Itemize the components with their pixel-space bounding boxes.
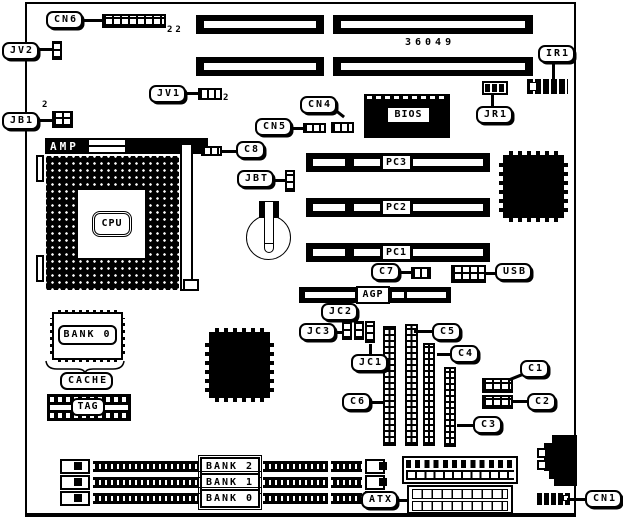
label-jc2: JC2 xyxy=(321,303,358,321)
socket-tab-lower xyxy=(36,255,44,282)
bios-socket-dashes xyxy=(367,96,447,99)
cn6-header xyxy=(102,14,166,28)
cn4-connector xyxy=(331,122,354,133)
label-tag: TAG xyxy=(71,398,105,416)
cn5-pointer xyxy=(290,127,304,130)
label-jv2: JV2 xyxy=(2,42,39,60)
label-pc1: PC1 xyxy=(381,244,412,261)
label-cpu: CPU xyxy=(94,213,130,235)
label-cn6: CN6 xyxy=(46,11,83,29)
isa-slot-1-left xyxy=(196,15,324,34)
socket-lever-foot xyxy=(183,279,199,291)
board-edge-left xyxy=(25,2,27,517)
cn6-pointer xyxy=(84,19,102,22)
socket-tab-upper xyxy=(36,155,44,182)
board-number: 36049 xyxy=(405,38,455,48)
jc2-jumper xyxy=(354,321,364,340)
cn1-connector xyxy=(537,493,571,505)
label-jc1: JC1 xyxy=(351,354,388,372)
jv1-jumper xyxy=(198,88,222,100)
jv2-pointer xyxy=(37,48,53,51)
chipset-qfp-middle xyxy=(209,332,270,398)
battery-pin xyxy=(264,201,274,253)
c6-strip xyxy=(383,326,396,446)
c6-pointer xyxy=(370,401,384,404)
keyboard-connector-body xyxy=(544,443,577,471)
cn6-pin-count: 22 xyxy=(167,26,184,35)
keyboard-notch-lower xyxy=(537,460,547,470)
c5-strip xyxy=(405,324,418,446)
amp-slot xyxy=(89,147,125,152)
atx-power-connector xyxy=(407,485,513,514)
isa-slot-2-left xyxy=(196,57,324,76)
c3-strip xyxy=(444,367,456,447)
label-agp: AGP xyxy=(356,286,390,304)
keyboard-connector-foot xyxy=(554,478,577,486)
chipset-qfp-top xyxy=(503,155,564,218)
c4-strip xyxy=(423,343,435,446)
label-bios: BIOS xyxy=(386,106,431,124)
socket-lever xyxy=(180,143,193,291)
label-usb: USB xyxy=(495,263,532,281)
amp-slot xyxy=(89,140,125,145)
board-edge-top xyxy=(25,2,576,4)
label-cn4: CN4 xyxy=(300,96,337,114)
label-c8: C8 xyxy=(236,141,265,159)
c7-connector xyxy=(411,267,431,279)
motherboard-diagram: 36049 22 CN6 JV2 2 JB1 2 JV1 CN4 CN5 C8 … xyxy=(0,0,623,519)
label-c7: C7 xyxy=(371,263,400,281)
simm-slot-bank0: BANK 0 xyxy=(60,491,385,507)
label-c4: C4 xyxy=(450,345,479,363)
jv1-pointer xyxy=(184,92,199,95)
jbt-jumper xyxy=(285,170,295,192)
label-jv1: JV1 xyxy=(149,85,186,103)
at-power-connector xyxy=(402,456,518,484)
label-jr1: JR1 xyxy=(476,106,513,124)
c3-pointer xyxy=(457,424,474,427)
cn1-pointer xyxy=(567,498,587,501)
c1-header xyxy=(482,378,513,393)
ir1-pointer xyxy=(552,61,555,80)
label-c5: C5 xyxy=(432,323,461,341)
keyboard-notch-upper xyxy=(537,448,547,458)
usb-header xyxy=(451,265,486,283)
label-c6: C6 xyxy=(342,393,371,411)
label-cn1: CN1 xyxy=(585,490,622,508)
label-amp: AMP xyxy=(50,141,79,152)
jv1-pin1-mark: 2 xyxy=(223,94,228,103)
c8-pointer xyxy=(221,150,237,153)
label-pc2: PC2 xyxy=(381,199,412,216)
jv2-jumper xyxy=(52,41,62,60)
jr1-connector xyxy=(482,81,508,95)
c2-header xyxy=(482,395,513,409)
ir1-connector xyxy=(527,79,568,94)
cn5-connector xyxy=(303,123,326,133)
jb1-pin1-mark: 2 xyxy=(42,101,47,110)
label-jc3: JC3 xyxy=(299,323,336,341)
label-jbt: JBT xyxy=(237,170,274,188)
jb1-jumper xyxy=(52,111,73,128)
jc1-jumper xyxy=(365,321,375,343)
label-cache: CACHE xyxy=(60,372,113,390)
label-bank0-chip: BANK 0 xyxy=(58,325,117,345)
label-cn5: CN5 xyxy=(255,118,292,136)
label-bank0: BANK 0 xyxy=(200,489,260,508)
label-c2: C2 xyxy=(527,393,556,411)
label-c3: C3 xyxy=(473,416,502,434)
label-c1: C1 xyxy=(520,360,549,378)
label-ir1: IR1 xyxy=(538,45,575,63)
jbt-pointer xyxy=(273,179,286,182)
c7-pointer xyxy=(399,271,412,274)
c5-pointer xyxy=(414,330,433,333)
isa-slot-1-right xyxy=(333,15,533,34)
c8-connector xyxy=(201,146,222,156)
jc3-jumper xyxy=(342,322,352,340)
label-atx: ATX xyxy=(361,491,398,509)
label-pc3: PC3 xyxy=(381,154,412,171)
isa-slot-2-right xyxy=(333,57,533,76)
c2-pointer xyxy=(512,400,528,403)
label-jb1: JB1 xyxy=(2,112,39,130)
